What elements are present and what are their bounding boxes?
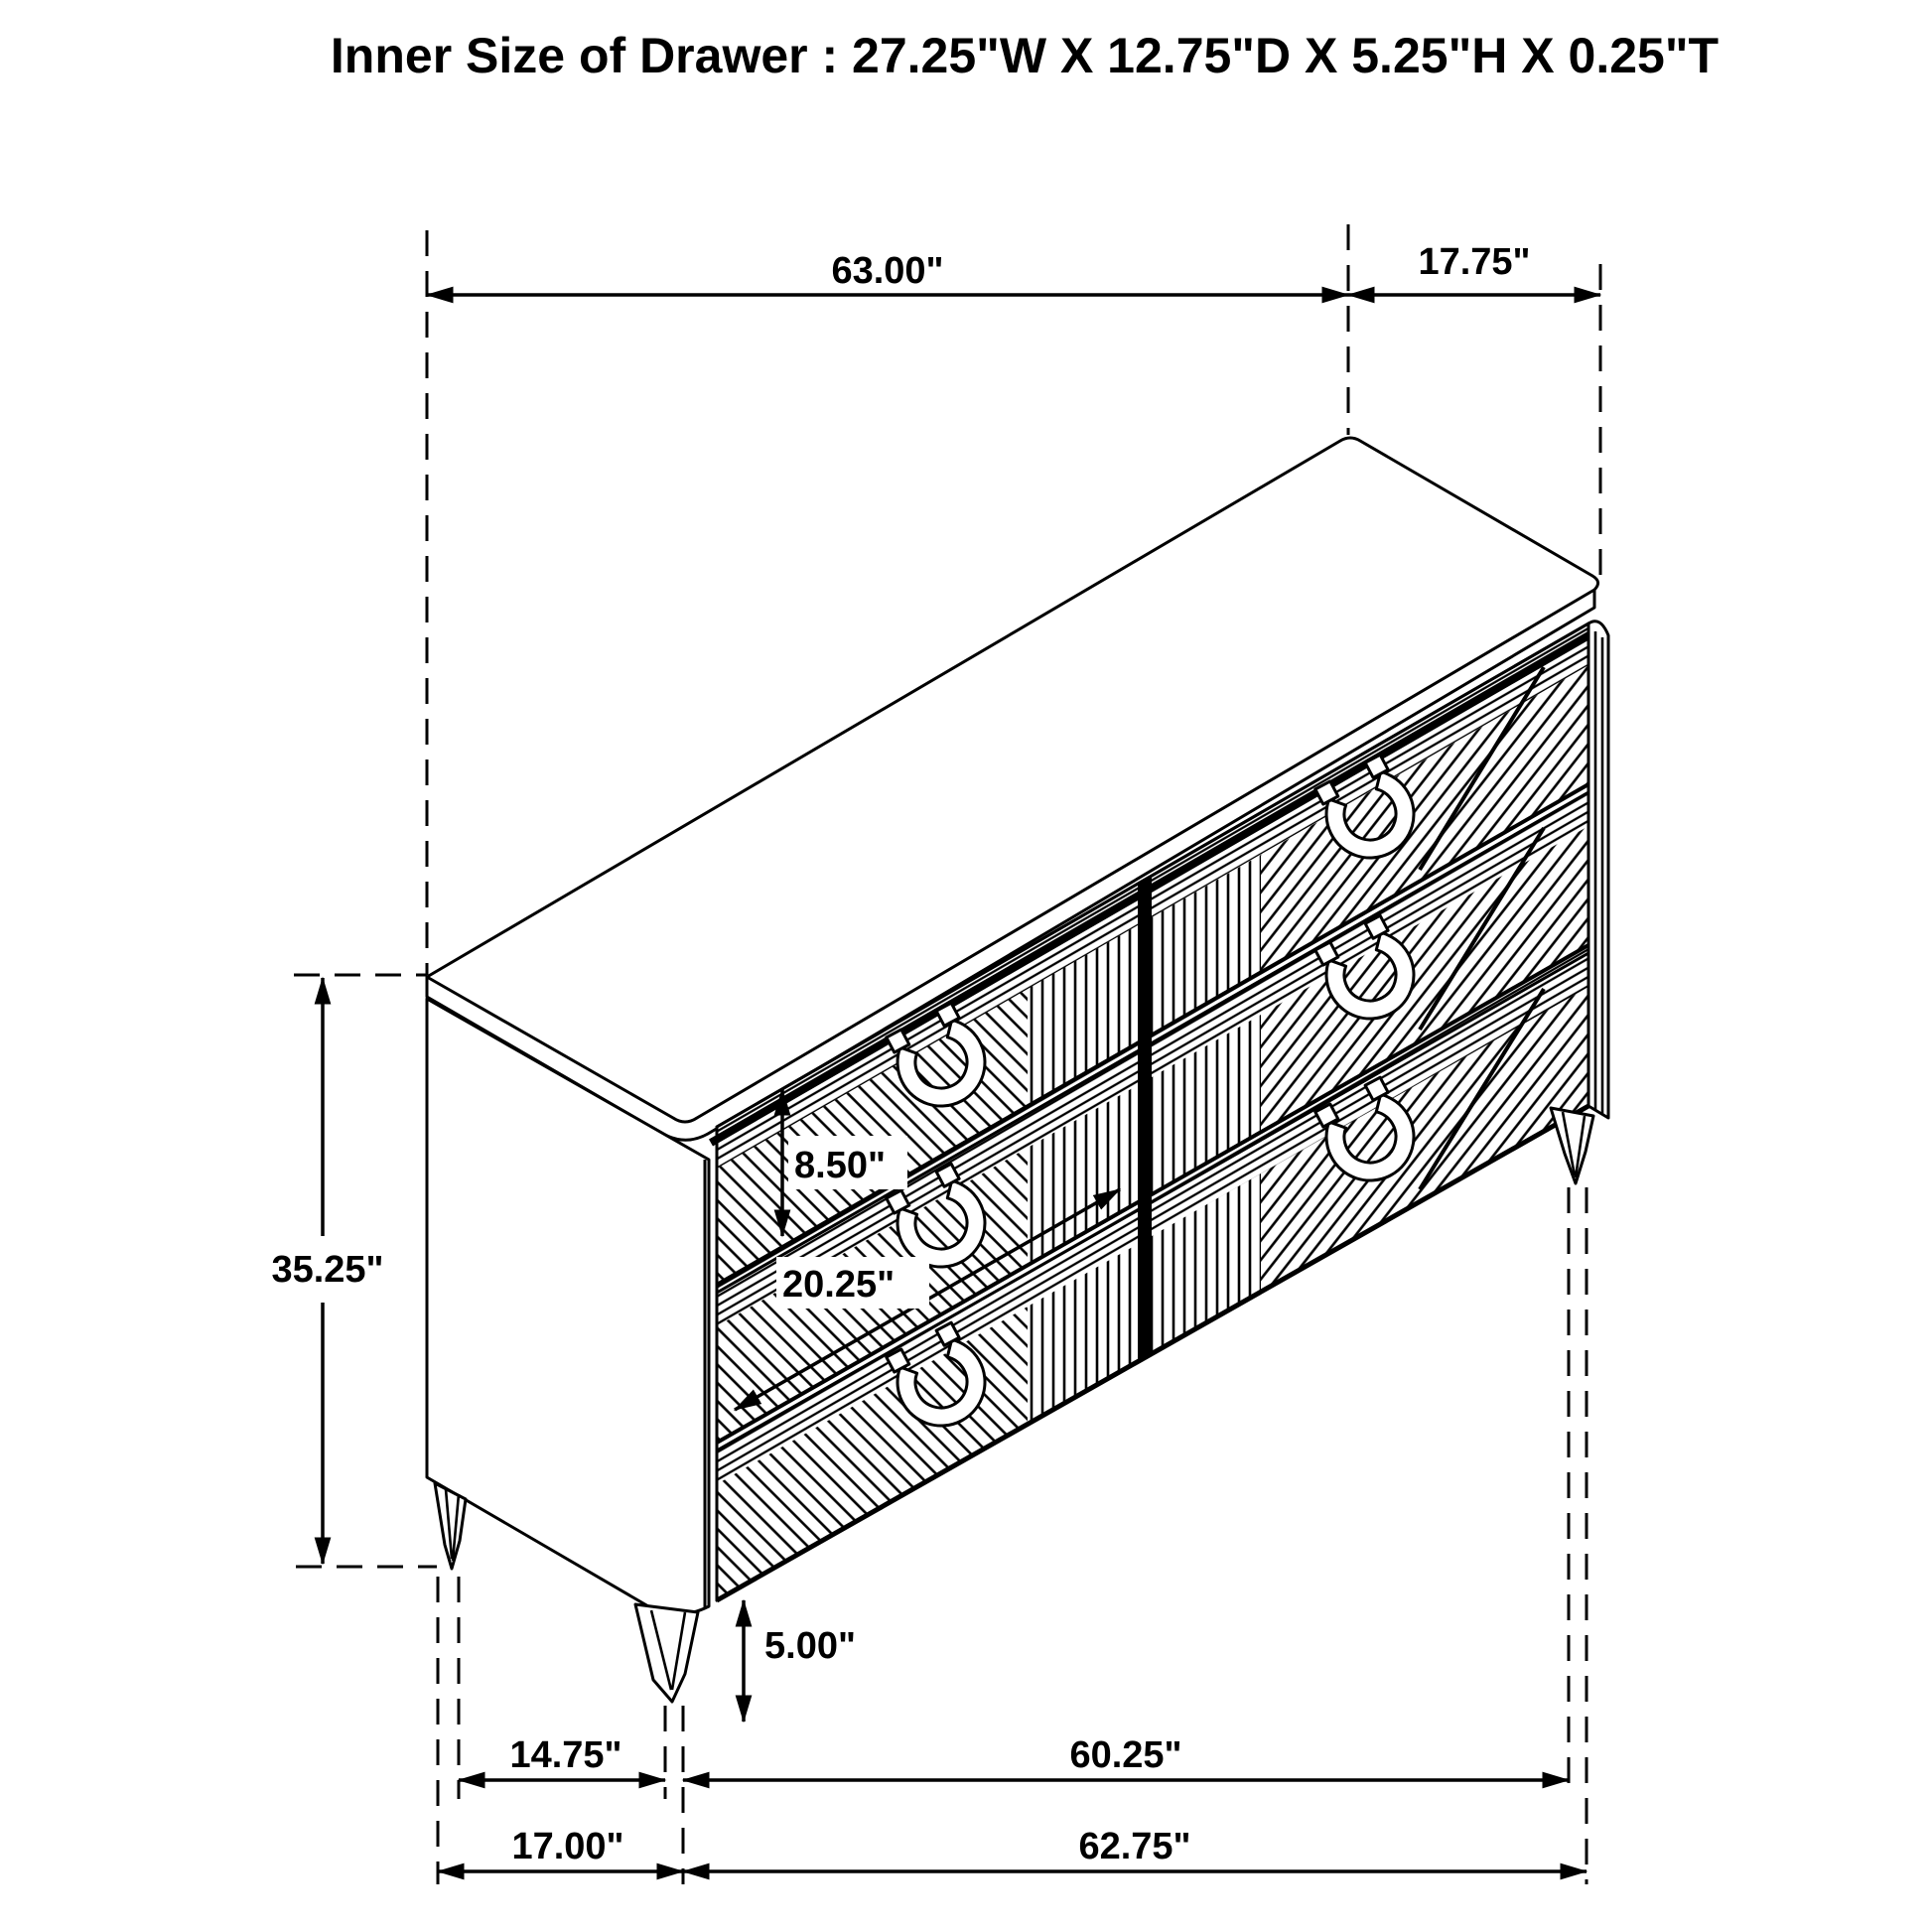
dimension-label-floor-width-outer: 62.75" (1078, 1826, 1190, 1867)
front-right-leg (1551, 1108, 1593, 1183)
front-left-leg (635, 1604, 698, 1702)
dimension-label-leg-span-width-inner: 60.25" (1069, 1734, 1181, 1776)
dimension-label-floor-depth-outer: 17.00" (511, 1826, 623, 1867)
dimension-label-front-leg-inset-depth: 14.75" (509, 1734, 621, 1776)
dresser-drawing (427, 438, 1608, 1702)
rear-left-leg (435, 1483, 466, 1569)
dimension-label-overall-height: 35.25" (271, 1249, 383, 1291)
dimension-label-drawer-inner-depth: 20.25" (782, 1264, 895, 1306)
dimension-label-leg-height: 5.00" (764, 1625, 856, 1667)
dimension-label-overall-width: 63.00" (831, 250, 943, 292)
page-title: Inner Size of Drawer : 27.25"W X 12.75"D… (331, 28, 1719, 83)
dimension-label-drawer-opening-height: 8.50" (794, 1145, 886, 1186)
right-corner-strip (1588, 621, 1608, 1118)
center-divider (1138, 876, 1152, 1362)
dimension-label-top-depth: 17.75" (1418, 241, 1530, 283)
dresser-dimension-diagram: 63.00" 17.75" 35.25" 8.50" 20.25" 5.00" … (0, 0, 1932, 1932)
